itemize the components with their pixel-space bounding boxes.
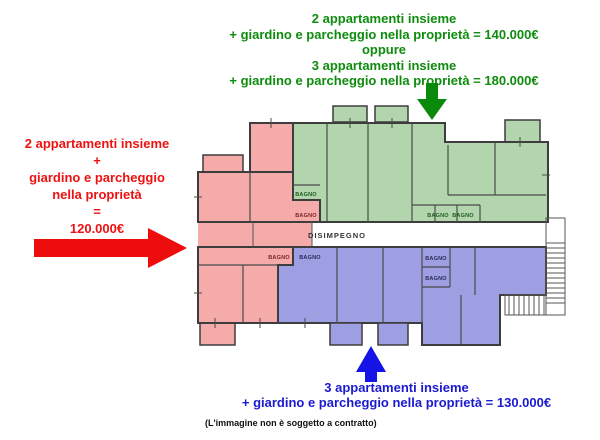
balcony — [203, 155, 243, 172]
annotation-line: 3 appartamenti insieme — [193, 380, 600, 395]
apartment-area — [278, 247, 546, 345]
annotation-line: 3 appartamenti insieme — [168, 58, 600, 74]
blue-apartment-region — [278, 247, 546, 345]
annotation-line: oppure — [168, 42, 600, 58]
bagno-label: BAGNO — [268, 255, 290, 261]
staircase-enclosure — [505, 295, 546, 315]
bagno-label: BAGNO — [295, 213, 317, 219]
bagno-label: BAGNO — [299, 255, 321, 261]
balcony — [200, 323, 235, 345]
floor-plan: DISIMPEGNO BAGNO BAGNO BAGNO BAGNO BAGNO… — [185, 105, 600, 360]
balcony — [505, 120, 540, 143]
disclaimer-note: (L'immagine non è soggetto a contratto) — [205, 418, 377, 428]
balcony — [378, 323, 408, 345]
red-right-arrow-shape — [34, 228, 187, 268]
bagno-label: BAGNO — [427, 213, 449, 219]
bagno-label: BAGNO — [425, 256, 447, 262]
red-right-arrow-icon — [34, 228, 188, 268]
annotation-line: + giardino e parcheggio nella proprietà … — [168, 27, 600, 43]
annotation-line: + — [2, 152, 192, 169]
annotation-line: giardino e parcheggio — [2, 169, 192, 186]
annotation-line: nella proprietà — [2, 186, 192, 203]
bagno-label: BAGNO — [295, 192, 317, 198]
annotated-floorplan-image: { "top_annotation": { "color": "#0d8c0d"… — [0, 0, 600, 440]
staircase-enclosure — [546, 218, 565, 315]
room — [250, 123, 293, 172]
annotation-line: 2 appartamenti insieme — [168, 11, 600, 27]
left-price-annotation: 2 appartamenti insieme + giardino e parc… — [2, 135, 192, 237]
bagno-label: BAGNO — [452, 213, 474, 219]
annotation-line: = — [2, 203, 192, 220]
corridor-pink-section — [198, 222, 312, 247]
annotation-line: 2 appartamenti insieme — [2, 135, 192, 152]
annotation-line: + giardino e parcheggio nella proprietà … — [168, 73, 600, 89]
bottom-price-annotation: 3 appartamenti insieme + giardino e parc… — [193, 380, 600, 410]
annotation-line: + giardino e parcheggio nella proprietà … — [193, 395, 600, 410]
bagno-label: BAGNO — [425, 276, 447, 282]
disimpegno-label: DISIMPEGNO — [308, 231, 366, 240]
balcony — [330, 323, 362, 345]
top-price-annotation: 2 appartamenti insieme + giardino e parc… — [168, 11, 600, 89]
